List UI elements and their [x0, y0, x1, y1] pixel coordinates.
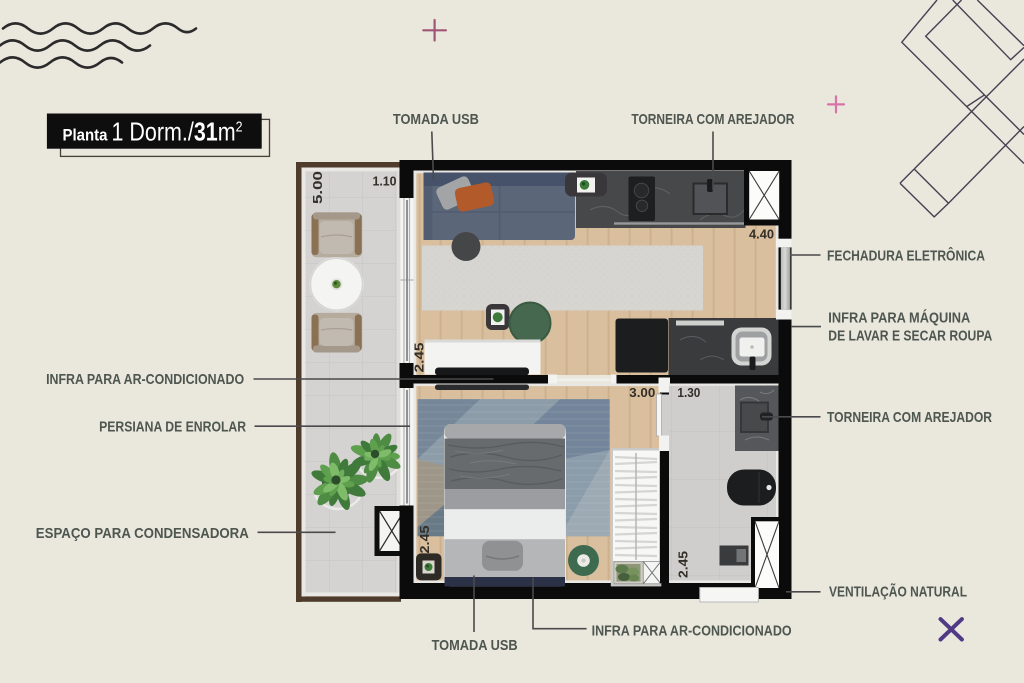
svg-text:2.45: 2.45: [676, 551, 691, 578]
svg-text:1.30: 1.30: [677, 385, 700, 400]
svg-text:1.10: 1.10: [373, 174, 397, 189]
svg-text:TORNEIRA COM AREJADOR: TORNEIRA COM AREJADOR: [827, 410, 992, 426]
svg-text:VENTILAÇÃO NATURAL: VENTILAÇÃO NATURAL: [829, 583, 967, 601]
svg-text:Planta: Planta: [63, 127, 109, 145]
svg-text:TOMADA USB: TOMADA USB: [393, 112, 479, 128]
svg-text:INFRA PARA MÁQUINA: INFRA PARA MÁQUINA: [828, 310, 970, 327]
svg-text:5.00: 5.00: [310, 171, 325, 204]
svg-text:PERSIANA DE ENROLAR: PERSIANA DE ENROLAR: [99, 420, 246, 436]
svg-text:TORNEIRA COM AREJADOR: TORNEIRA COM AREJADOR: [631, 112, 794, 128]
svg-text:TOMADA USB: TOMADA USB: [432, 638, 518, 654]
svg-text:2.45: 2.45: [417, 526, 432, 554]
svg-text:FECHADURA ELETRÔNICA: FECHADURA ELETRÔNICA: [827, 247, 985, 265]
svg-text:ESPAÇO PARA CONDENSADORA: ESPAÇO PARA CONDENSADORA: [36, 526, 249, 542]
svg-text:INFRA PARA AR-CONDICIONADO: INFRA PARA AR-CONDICIONADO: [46, 372, 244, 388]
svg-text:4.40: 4.40: [749, 227, 774, 242]
svg-text:3.00: 3.00: [629, 385, 655, 400]
svg-text:1 Dorm./31m2: 1 Dorm./31m2: [112, 117, 243, 147]
svg-text:DE LAVAR E SECAR ROUPA: DE LAVAR E SECAR ROUPA: [828, 329, 992, 345]
svg-text:2.45: 2.45: [412, 343, 427, 373]
svg-text:INFRA PARA AR-CONDICIONADO: INFRA PARA AR-CONDICIONADO: [592, 624, 792, 640]
